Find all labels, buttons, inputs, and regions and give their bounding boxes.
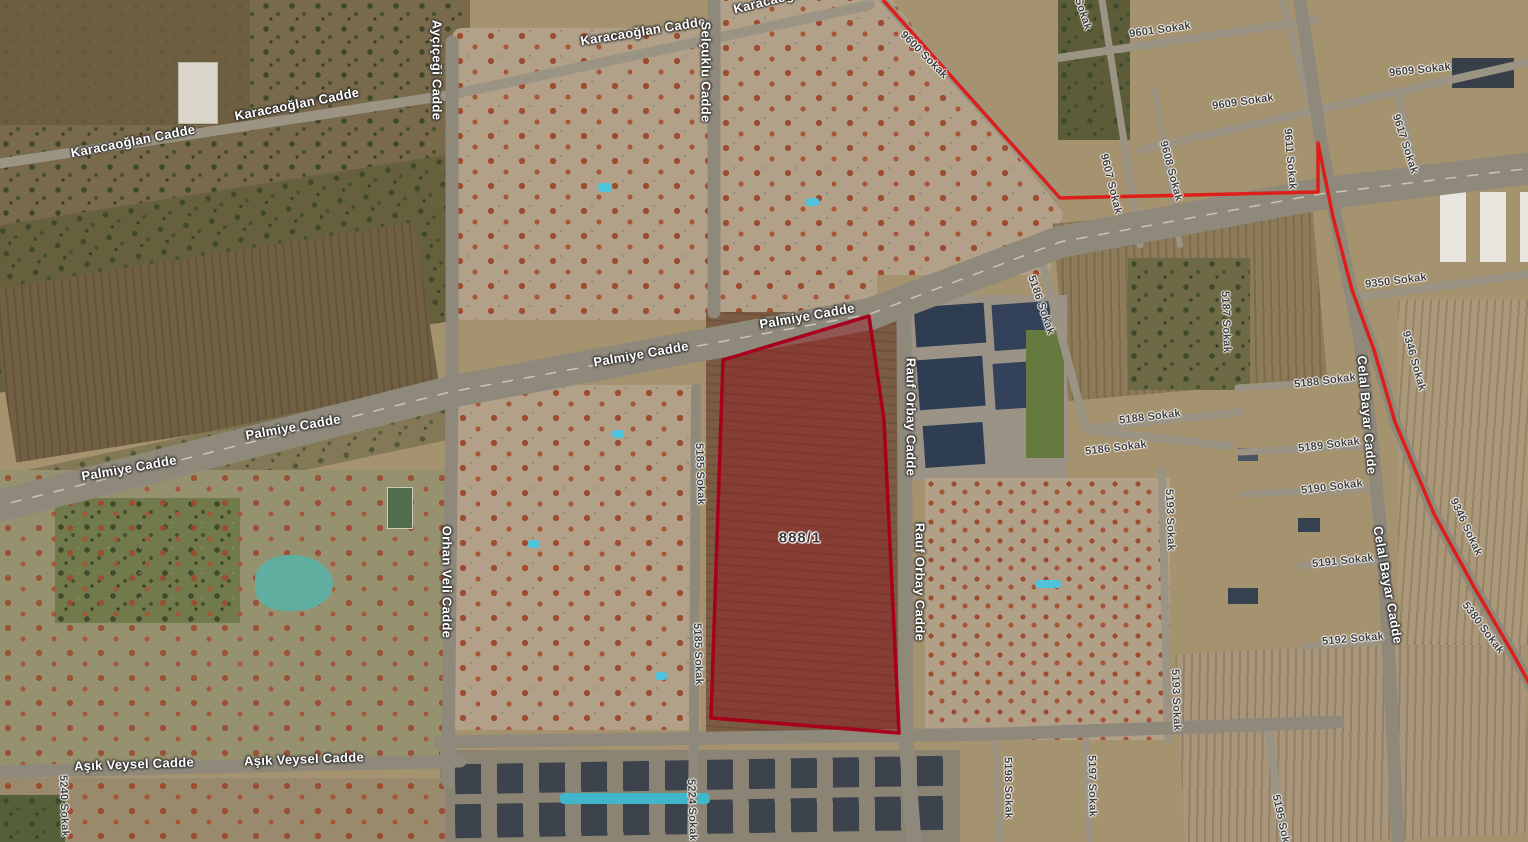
street-label: 5185 Sokak: [691, 623, 705, 685]
street-label: 5193 Sokak: [1169, 669, 1183, 731]
street-label: Karacaoğlan Cadde: [732, 0, 858, 17]
street-label: 5198 Sokak: [1001, 757, 1014, 819]
labels-layer: Karacaoğlan CaddeKaracaoğlan CaddeKaraca…: [0, 0, 1528, 842]
street-label: Palmiye Cadde: [758, 300, 856, 332]
street-label: Sokak: [1072, 0, 1094, 32]
street-label: 5197 Sokak: [1085, 755, 1098, 817]
street-label: 5188 Sokak: [1294, 371, 1357, 390]
street-label: Ayçiçeği Cadde: [430, 20, 445, 121]
street-label: Karacaoğlan Cadde: [69, 122, 196, 161]
street-label: 5195 Sokak: [1270, 793, 1295, 842]
street-label: 5193 Sokak: [1163, 489, 1177, 551]
street-label: 5185 Sokak: [693, 443, 707, 505]
street-label: 5192 Sokak: [1322, 630, 1385, 647]
street-label: Selçuklu Cadde: [699, 21, 714, 122]
street-label: Karacaoğlan Cadde: [233, 85, 360, 124]
street-label: Aşık Veysel Cadde: [244, 749, 364, 768]
street-label: 9608 Sokak: [1157, 140, 1185, 203]
street-label: Palmiye Cadde: [592, 338, 690, 370]
street-label: 5189 Sokak: [1298, 435, 1361, 454]
street-label: 9607 Sokak: [1098, 152, 1125, 215]
street-label: 5240 Sokak: [57, 775, 71, 837]
street-label: 9609 Sokak: [1211, 92, 1274, 113]
street-label: Palmiye Cadde: [80, 452, 178, 484]
street-label: 5186 Sokak: [1085, 438, 1148, 457]
street-label: 9350 Sokak: [1365, 271, 1428, 290]
street-label: Celal Bayar Cadde: [1370, 525, 1405, 645]
street-label: 9346 Sokak: [1447, 496, 1484, 557]
street-label: Celal Bayar Cadde: [1354, 355, 1379, 475]
street-label: 9600 Sokak: [898, 29, 950, 81]
street-label: 5191 Sokak: [1312, 552, 1375, 570]
street-label: 9601 Sokak: [1128, 20, 1191, 41]
street-label: 5190 Sokak: [1301, 477, 1364, 496]
street-label: 5188 Sokak: [1119, 407, 1182, 426]
street-label: Rauf Orbay Cadde: [904, 358, 919, 476]
street-label: 5186 Sokak: [1025, 274, 1057, 336]
street-label: 5224 Sokak: [685, 779, 699, 841]
satellite-map[interactable]: Karacaoğlan CaddeKaracaoğlan CaddeKaraca…: [0, 0, 1528, 842]
street-label: Karacaoğlan Cadde: [579, 14, 706, 49]
street-label: 9346 Sokak: [1400, 330, 1429, 393]
street-label: 5380 Sokak: [1460, 600, 1507, 657]
street-label: Palmiye Cadde: [244, 411, 342, 443]
street-label: 5187 Sokak: [1219, 291, 1233, 353]
street-label: 9611 Sokak: [1281, 128, 1298, 190]
street-label: 9617 Sokak: [1390, 113, 1421, 176]
street-label: Aşık Veysel Cadde: [74, 754, 194, 773]
street-label: Rauf Orbay Cadde: [913, 523, 928, 641]
street-label: 9609 Sokak: [1389, 61, 1452, 79]
street-label: Orhan Veli Cadde: [440, 526, 455, 638]
